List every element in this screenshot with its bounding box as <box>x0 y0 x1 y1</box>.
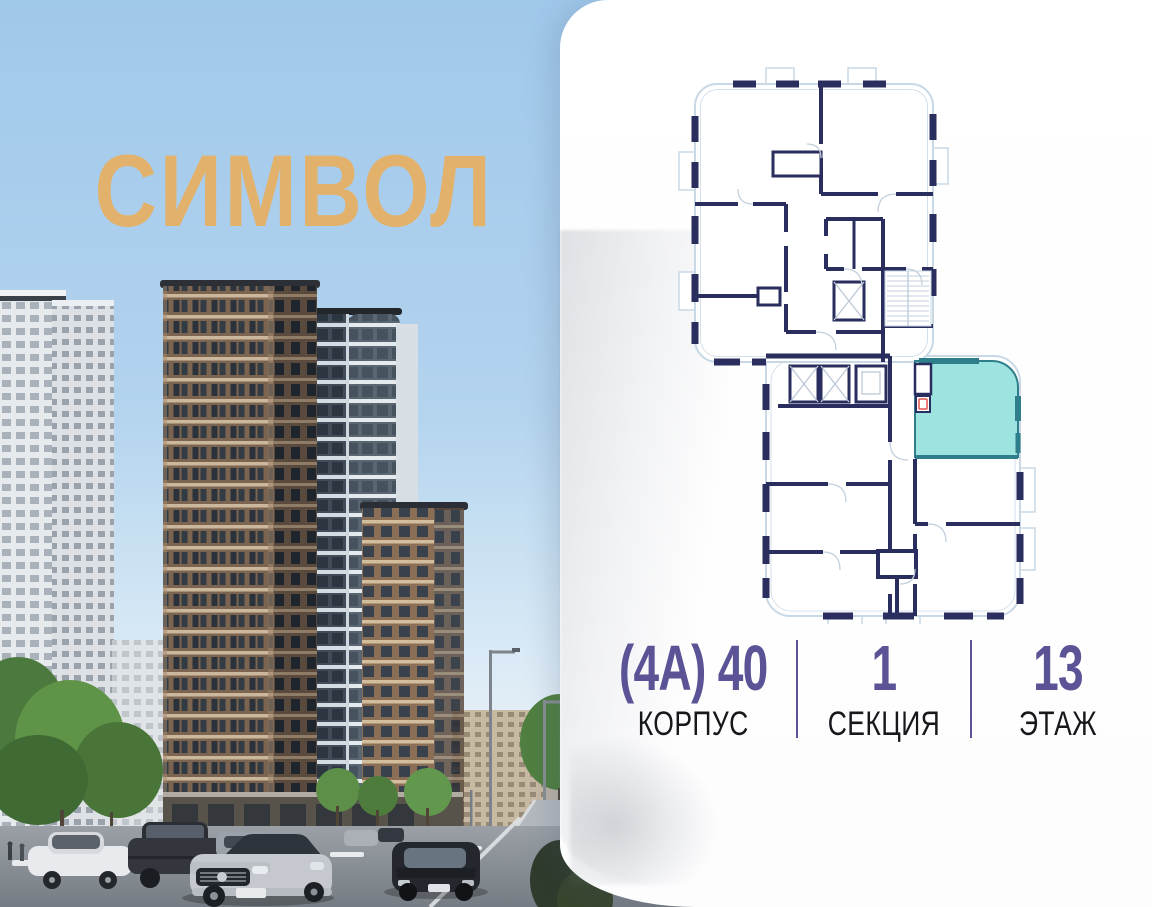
info-row: (4А) 40 КОРПУС 1 СЕКЦИЯ 13 ЭТАЖ <box>590 636 1122 741</box>
stat-floor: 13 ЭТАЖ <box>972 636 1144 741</box>
stairs <box>885 271 931 326</box>
details-card: (4А) 40 КОРПУС 1 СЕКЦИЯ 13 ЭТАЖ <box>560 0 1152 907</box>
section-value: 1 <box>822 636 946 700</box>
floor-value: 13 <box>996 636 1120 700</box>
floor-label: ЭТАЖ <box>991 707 1125 741</box>
apartment-card-screen: СИМВОЛ <box>0 0 1152 907</box>
section-label: СЕКЦИЯ <box>817 707 951 741</box>
ghost-street-backdrop <box>570 735 720 885</box>
stat-building: (4А) 40 КОРПУС <box>590 636 796 741</box>
brand-logo: СИМВОЛ <box>95 140 486 242</box>
building-label: КОРПУС <box>613 707 774 741</box>
building-value: (4А) 40 <box>619 636 768 700</box>
floor-plan <box>678 64 1038 624</box>
stat-section: 1 СЕКЦИЯ <box>798 636 970 741</box>
selected-apartment[interactable] <box>915 361 1018 457</box>
